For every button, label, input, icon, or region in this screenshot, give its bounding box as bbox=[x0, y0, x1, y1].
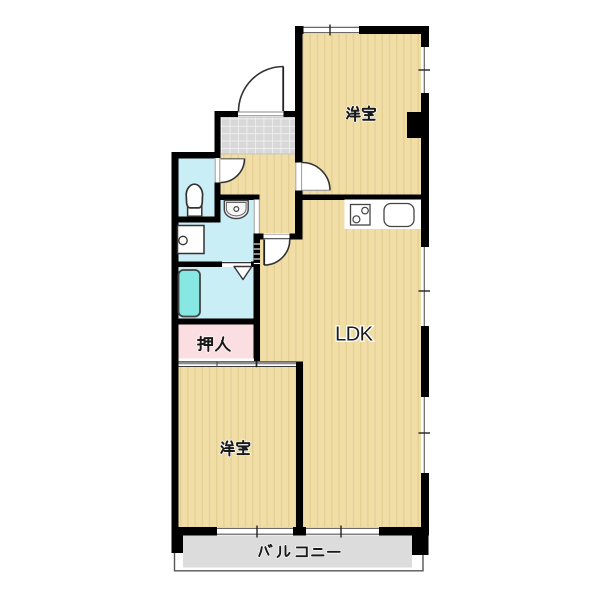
svg-text:LDK: LDK bbox=[335, 324, 374, 346]
